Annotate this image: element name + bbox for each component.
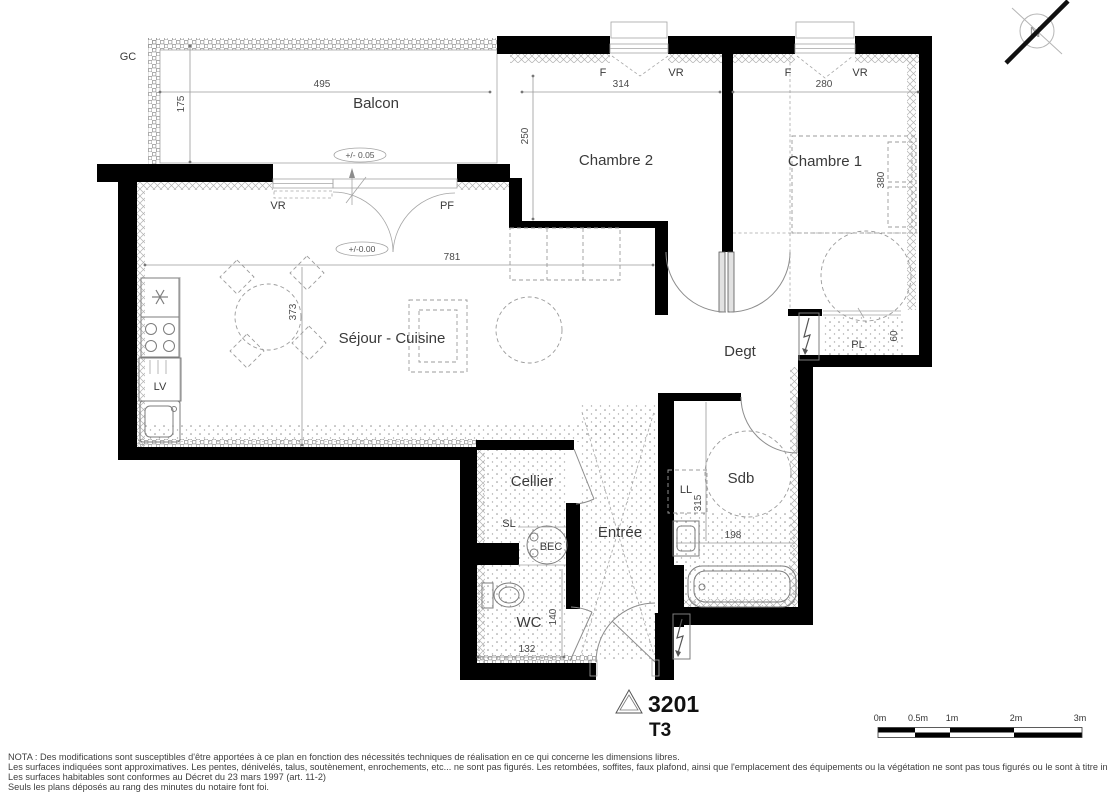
north-arrow-icon (1006, 1, 1068, 63)
bedroom1-depth-dim: 380 (876, 171, 887, 188)
lot-type: T3 (649, 720, 671, 741)
closet-label: PL (851, 339, 864, 351)
bathroom-depth-dim: 315 (693, 494, 704, 511)
living-pf-label: PF (440, 200, 454, 212)
balcony-depth-dim: 175 (176, 95, 187, 112)
balcony-width-dim: 495 (314, 79, 331, 90)
scale-0: 0m (874, 713, 887, 723)
bedroom1-vr-label: VR (852, 67, 867, 79)
wc-label: WC (517, 614, 542, 631)
storage-heater-label: BEC (540, 541, 563, 553)
bedroom1-door (728, 252, 790, 312)
bedroom2-f-label: F (600, 67, 607, 79)
nota-line-4: Seuls les plans déposés au rang des minu… (8, 782, 269, 792)
balcony-edge-hatch-top (148, 38, 500, 50)
bedroom1-f-label: F (785, 67, 792, 79)
bedroom1-width-dim: 280 (816, 79, 833, 90)
wc-width-dim: 132 (519, 644, 536, 655)
nota-line-2: Les surfaces indiquées sont approximativ… (8, 762, 1108, 772)
balcony-level: +/- 0.05 (345, 150, 374, 160)
wc-depth-dim: 140 (548, 608, 559, 625)
living-french-door (333, 168, 457, 252)
entry-direction-arrow (349, 168, 355, 178)
bedroom2-window (610, 22, 668, 76)
bed (792, 136, 916, 233)
bedroom2-label: Chambre 2 (579, 152, 653, 169)
bedroom2-door (666, 252, 726, 312)
scale-bar: 0m 0.5m 1m 2m 3m (874, 713, 1087, 738)
fridge-icon (141, 278, 179, 317)
wall-notch (907, 344, 919, 355)
bedroom2-width-dim: 314 (613, 79, 630, 90)
living-level: +/-0.00 (349, 244, 376, 254)
chair (230, 334, 264, 368)
scale-3: 3m (1074, 713, 1087, 723)
washing-machine-label: LL (680, 484, 692, 496)
bathroom-label: Sdb (728, 470, 755, 487)
storage-sl-label: SL (502, 518, 515, 530)
cooktop-icon (141, 317, 179, 357)
balcony-area (148, 38, 500, 168)
storage-label: Cellier (511, 473, 554, 490)
chair (290, 256, 324, 290)
compass: N (1006, 1, 1068, 63)
floor-plan-page: LV (0, 0, 1108, 800)
sideboard (510, 228, 620, 280)
bedroom1-window (795, 22, 855, 78)
living-depth-dim: 373 (288, 303, 299, 320)
lot-number: 3201 (648, 691, 699, 717)
nota-line-3: Les surfaces habitables sont conformes a… (8, 772, 326, 782)
scale-1: 1m (946, 713, 959, 723)
dishwasher: LV (139, 358, 181, 401)
living-window-vr (273, 179, 333, 198)
electrical-panel-icon (799, 313, 819, 360)
chair (292, 326, 326, 360)
hallway-label: Degt (724, 343, 757, 360)
nota-line-1: NOTA : Des modifications sont susceptibl… (8, 752, 680, 762)
living-label: Séjour - Cuisine (339, 330, 446, 347)
balcony-label: Balcon (353, 95, 399, 112)
bedroom2-vr-label: VR (668, 67, 683, 79)
level-markers: +/- 0.05 +/-0.00 (334, 148, 388, 256)
balcony-edge-hatch-left (148, 38, 160, 168)
gc-label: GC (120, 51, 137, 63)
scale-05: 0.5m (908, 713, 928, 723)
balcony-outline (160, 50, 497, 163)
kitchen: LV (139, 277, 181, 443)
bathroom-door (741, 397, 797, 453)
entry-label: Entrée (598, 524, 642, 541)
nota-text: NOTA : Des modifications sont susceptibl… (8, 752, 1108, 792)
scale-2: 2m (1010, 713, 1023, 723)
living-width-dim: 781 (444, 252, 461, 263)
bedroom1-label: Chambre 1 (788, 153, 862, 170)
title-block: 3201 T3 (616, 690, 699, 741)
floor-plan-drawing: LV (0, 0, 1108, 800)
closet-depth-dim: 60 (889, 330, 900, 342)
dishwasher-label: LV (154, 381, 167, 393)
round-furniture (496, 297, 562, 363)
bathroom-width-dim: 198 (725, 530, 742, 541)
bedroom2-depth-dim: 250 (520, 127, 531, 144)
living-vr-label: VR (270, 200, 285, 212)
turning-circle-bedroom1 (821, 231, 911, 321)
